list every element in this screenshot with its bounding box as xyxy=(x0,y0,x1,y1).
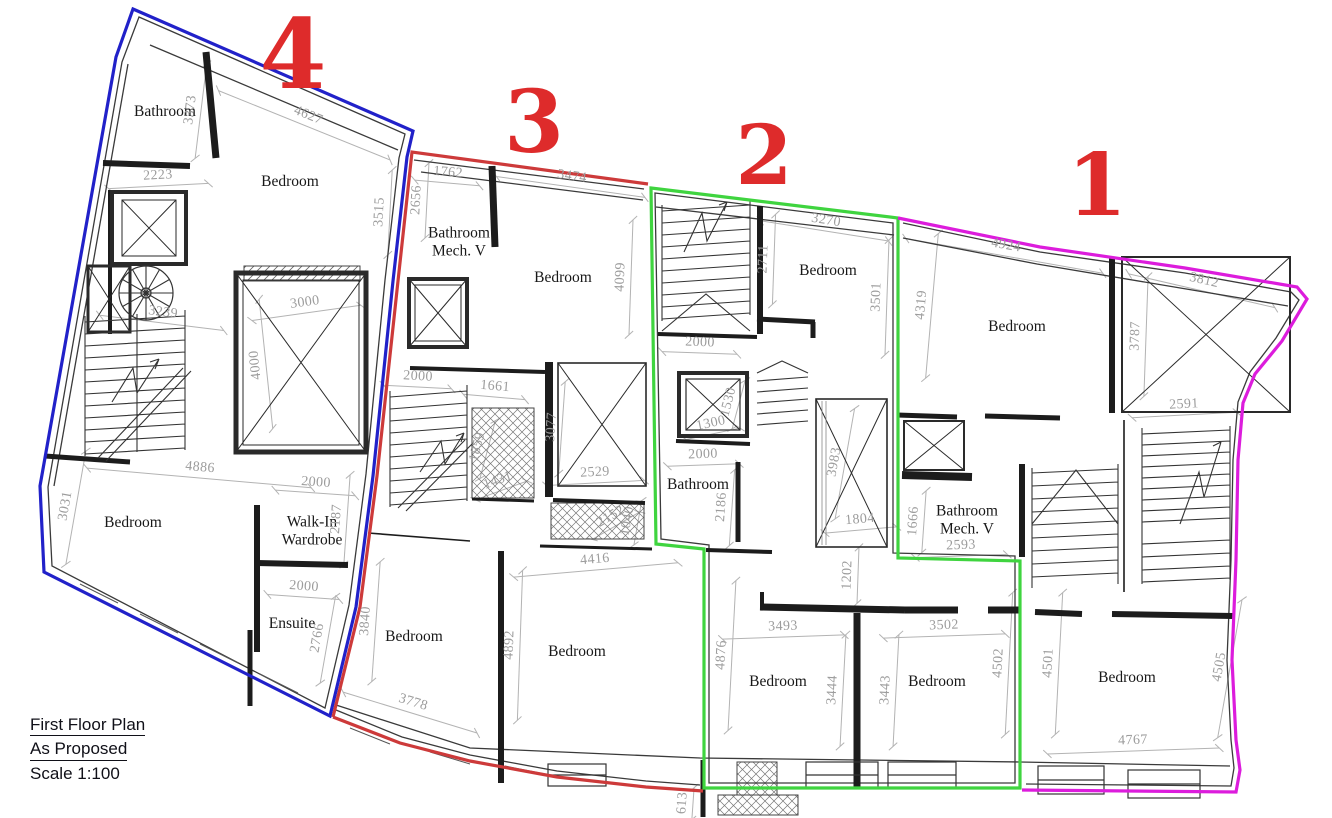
dimension-label: 2223 xyxy=(143,167,173,185)
unit-number-label: 4 xyxy=(260,7,327,103)
dimension-label: 1530 xyxy=(717,386,740,419)
dimension-label: 4886 xyxy=(185,459,216,478)
room-label: Bedroom xyxy=(908,673,966,691)
dimension-label: 2591 xyxy=(1169,396,1199,414)
room-label: Bedroom xyxy=(749,673,807,691)
dimension-label: 2711 xyxy=(755,244,772,274)
room-label: Bedroom xyxy=(799,262,857,280)
dimension-label: 4099 xyxy=(612,262,629,292)
plan-status: As Proposed xyxy=(30,738,127,760)
dimension-label: 1666 xyxy=(905,506,923,537)
dimension-label: 3840 xyxy=(357,606,375,637)
dimension-label: 4502 xyxy=(990,648,1008,678)
room-label: Bedroom xyxy=(548,643,606,661)
dimension-label: 3812 xyxy=(1188,270,1220,292)
room-label: Bedroom xyxy=(1098,669,1156,687)
dimension-label: 1762 xyxy=(433,164,464,183)
room-label: Ensuite xyxy=(269,615,316,633)
dimension-label: 4876 xyxy=(713,640,731,670)
dimension-label: 3493 xyxy=(768,618,798,635)
dimension-label: 2000 xyxy=(685,334,715,351)
title-block: First Floor Plan As Proposed Scale 1:100 xyxy=(30,714,145,784)
dimension-label: 2186 xyxy=(713,492,731,523)
dimension-label: 3778 xyxy=(397,691,430,715)
room-label: Bedroom xyxy=(104,514,162,532)
room-label: Bedroom xyxy=(261,173,319,191)
dimension-label: 4924 xyxy=(990,236,1022,257)
dimension-label: 3983 xyxy=(825,446,846,478)
dimension-label: 1202 xyxy=(839,560,856,590)
room-label: Bedroom xyxy=(988,318,1046,336)
room-label: Bathroom Mech. V xyxy=(428,225,490,262)
dimension-label: 4505 xyxy=(1210,651,1231,683)
unit-number-label: 1 xyxy=(1067,143,1127,229)
dimension-label: 2000 xyxy=(301,474,332,492)
dimension-label: 2000 xyxy=(403,368,433,386)
floor-plan-page: BathroomBedroomBathroom Mech. VBedroomBe… xyxy=(0,0,1332,818)
dimension-label: 1300 xyxy=(695,413,727,435)
dimension-label: 4319 xyxy=(913,290,932,321)
dimension-label: 1804 xyxy=(845,511,876,530)
plan-scale: Scale 1:100 xyxy=(30,764,120,783)
unit-number-label: 2 xyxy=(735,115,792,197)
dimension-label: 4000 xyxy=(246,349,265,380)
dimension-label: 4767 xyxy=(1118,732,1148,749)
dimension-label: 2000 xyxy=(688,446,718,463)
dimension-label: 3444 xyxy=(824,675,842,705)
dimension-label: 3443 xyxy=(877,675,895,705)
unit-number-label: 3 xyxy=(504,80,564,166)
plan-title: First Floor Plan xyxy=(30,714,145,736)
room-label: Bedroom xyxy=(534,269,592,287)
labels-layer: BathroomBedroomBathroom Mech. VBedroomBe… xyxy=(0,0,1332,818)
dimension-label: 2593 xyxy=(946,537,976,554)
dimension-label: 3515 xyxy=(371,197,389,227)
dimension-label: 3501 xyxy=(868,282,885,312)
dimension-label: 2000 xyxy=(289,578,320,596)
dimension-label: 4892 xyxy=(501,630,518,660)
dimension-label: 2187 xyxy=(328,504,346,535)
dimension-label: 3787 xyxy=(1127,321,1144,351)
room-label: Bathroom Mech. V xyxy=(936,503,998,540)
dimension-label: 3270 xyxy=(810,211,842,231)
dimension-label: 4416 xyxy=(580,551,611,570)
dimension-label: 4501 xyxy=(1040,648,1058,678)
dimension-label: 3239 xyxy=(147,303,178,322)
dimension-label: 3474 xyxy=(556,167,588,187)
dimension-label: 3373 xyxy=(181,94,200,125)
dimension-label: 2656 xyxy=(408,185,426,215)
dimension-label: 3502 xyxy=(929,617,959,634)
dimension-label: 1859 xyxy=(466,431,489,464)
dimension-label: 3000 xyxy=(289,293,321,313)
room-label: Bedroom xyxy=(385,628,443,646)
dimension-label: 1661 xyxy=(480,378,511,397)
dimension-label: 1431 xyxy=(481,468,514,493)
dimension-label: 3031 xyxy=(56,490,77,522)
dimension-label: 3077 xyxy=(543,412,561,443)
dimension-label: 2529 xyxy=(580,464,610,482)
dimension-label: 613 xyxy=(674,791,692,814)
